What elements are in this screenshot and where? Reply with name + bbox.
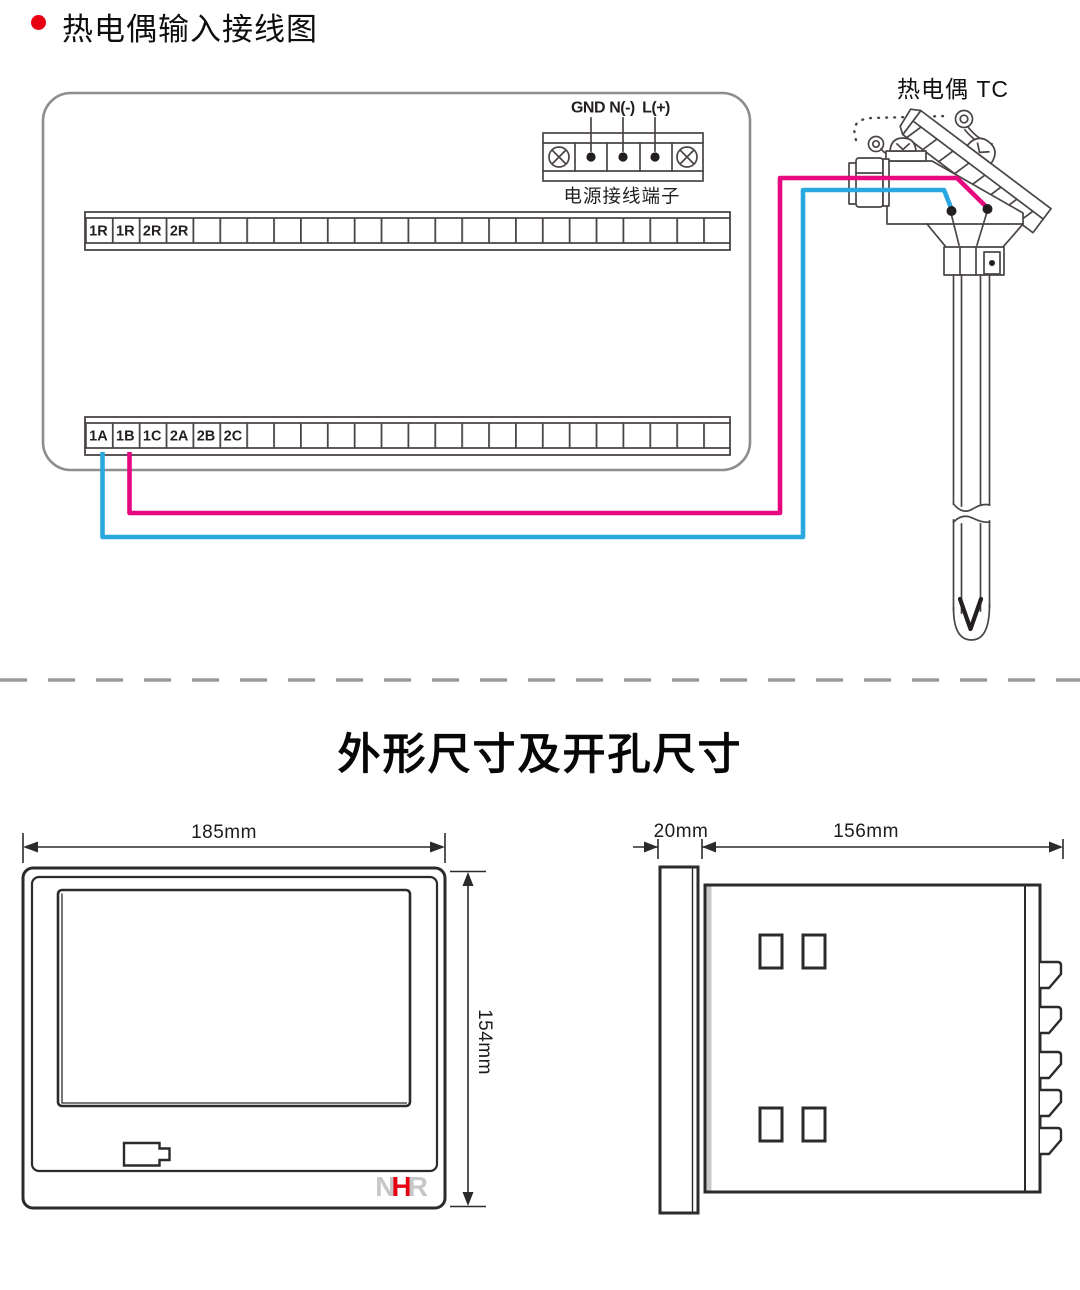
l-terminal-dot [650,152,659,161]
strip-top-cell-label: 1R [116,224,135,240]
strip-top-cell-label: 1R [89,224,108,240]
power-label-gnd: GND [571,100,605,117]
tc-tip-v-mark [960,599,981,629]
power-block-caption: 电源接线端子 [563,186,680,207]
tc-label: 热电偶 TC [897,76,1009,102]
thermocouple-illustration [849,92,1061,640]
tc-cable-gland [849,158,889,207]
front-width-label: 185mm [191,822,257,843]
power-label-n: N(-) [609,100,635,117]
page: GND N(-) L(+) 电源接线端子 1R 1R 2R 2R 1A 1B 1… [0,0,1080,1290]
side-vent-slot [760,1108,782,1141]
tc-terminal-dot-left [947,206,957,216]
front-inner-bezel [32,877,437,1171]
strip-bottom-cell-label: 1B [116,429,135,445]
front-screen [58,890,410,1106]
strip-top-cell-label: 2R [143,224,162,240]
side-vent-slot [760,935,782,968]
dimensions-section-title: 外形尺寸及开孔尺寸 [0,720,1080,782]
strip-top-cell-label: 2R [170,224,189,240]
front-height-label: 154mm [474,1009,495,1075]
strip-bottom-cell-label: 1A [89,429,108,445]
power-label-l: L(+) [642,100,670,117]
logo-letter-h: H [392,1171,408,1202]
rear-terminal-hooks [1040,962,1061,1154]
side-depth-label: 20mm [654,821,709,842]
strip-bottom-cell-label: 2A [170,429,189,445]
tc-terminal-dot-right [983,204,993,214]
side-body [705,885,1040,1192]
strip-bottom-cell-label: 2B [197,429,216,445]
n-terminal-dot [618,152,627,161]
front-outer-case [23,868,445,1208]
logo-letter-n: N [375,1171,391,1202]
usb-port-icon [124,1143,170,1166]
front-view-drawing [23,833,486,1208]
dim-20-156 [633,839,1063,859]
side-vent-slot [803,935,825,968]
page-title: 热电偶输入接线图 [62,4,318,49]
nhr-logo: NHR [352,1171,424,1203]
strip-bottom-cell-label: 1C [143,429,162,445]
tc-head-collar [886,151,926,161]
logo-letter-r: R [408,1171,424,1202]
side-vent-slot [803,1108,825,1141]
side-length-label: 156mm [833,821,899,842]
diagram-canvas: GND N(-) L(+) 电源接线端子 1R 1R 2R 2R 1A 1B 1… [0,0,1080,1290]
title-bullet-icon [31,15,46,30]
side-view-drawing [633,839,1063,1213]
gnd-terminal-dot [586,152,595,161]
tc-probe-sheath [954,275,990,640]
wiring-diagram: GND N(-) L(+) 电源接线端子 1R 1R 2R 2R 1A 1B 1… [43,76,1061,640]
strip-bottom-cell-label: 2C [224,429,243,445]
